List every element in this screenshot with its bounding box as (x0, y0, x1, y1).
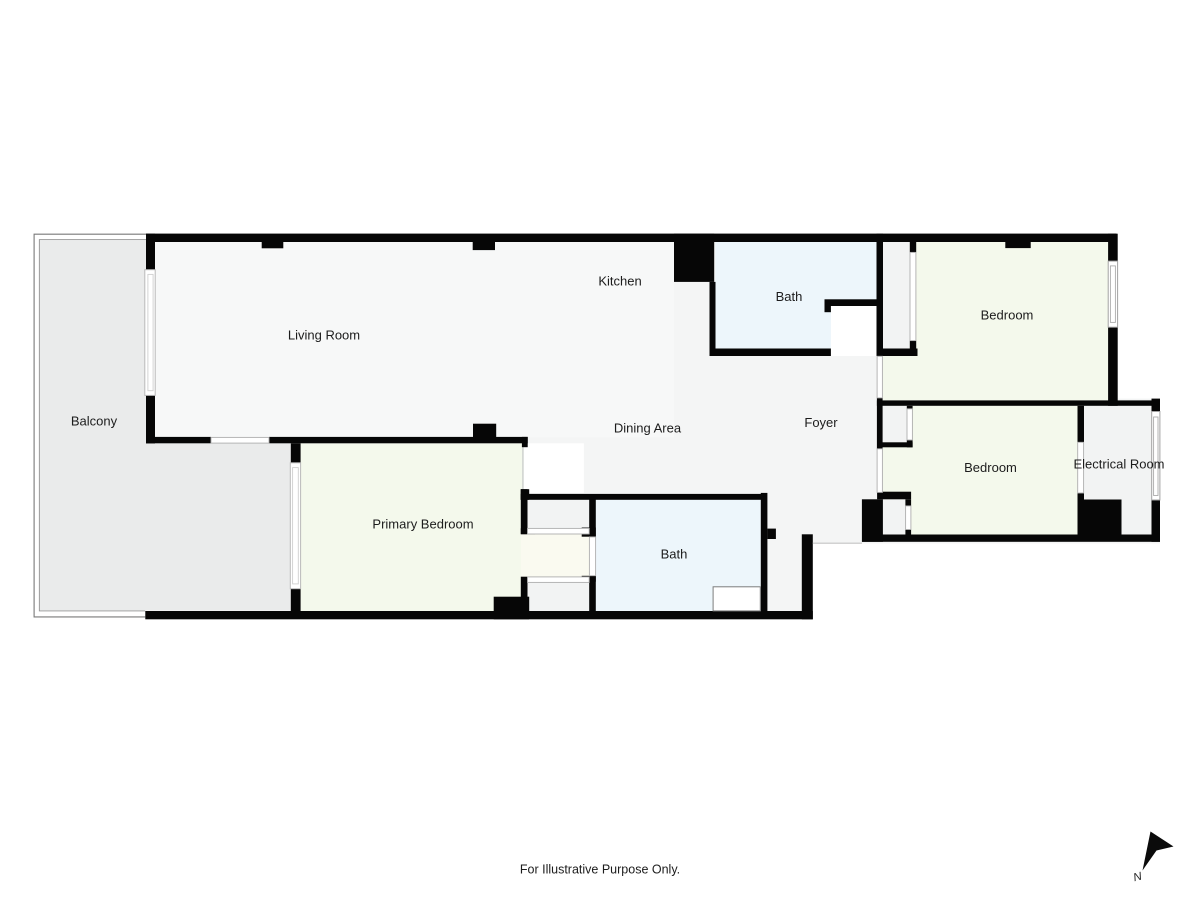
svg-text:Bedroom: Bedroom (964, 460, 1017, 475)
svg-text:Bath: Bath (776, 289, 803, 304)
svg-text:Bedroom: Bedroom (981, 308, 1034, 323)
svg-text:Foyer: Foyer (804, 415, 838, 430)
svg-text:Bath: Bath (661, 547, 688, 562)
svg-text:Primary Bedroom: Primary Bedroom (372, 517, 473, 532)
svg-text:Dining Area: Dining Area (614, 421, 682, 436)
svg-text:Electrical Room: Electrical Room (1073, 457, 1164, 472)
svg-text:Balcony: Balcony (71, 414, 118, 429)
svg-text:Living Room: Living Room (288, 328, 360, 343)
svg-text:For Illustrative Purpose Only.: For Illustrative Purpose Only. (520, 863, 680, 877)
svg-text:Kitchen: Kitchen (598, 274, 641, 289)
